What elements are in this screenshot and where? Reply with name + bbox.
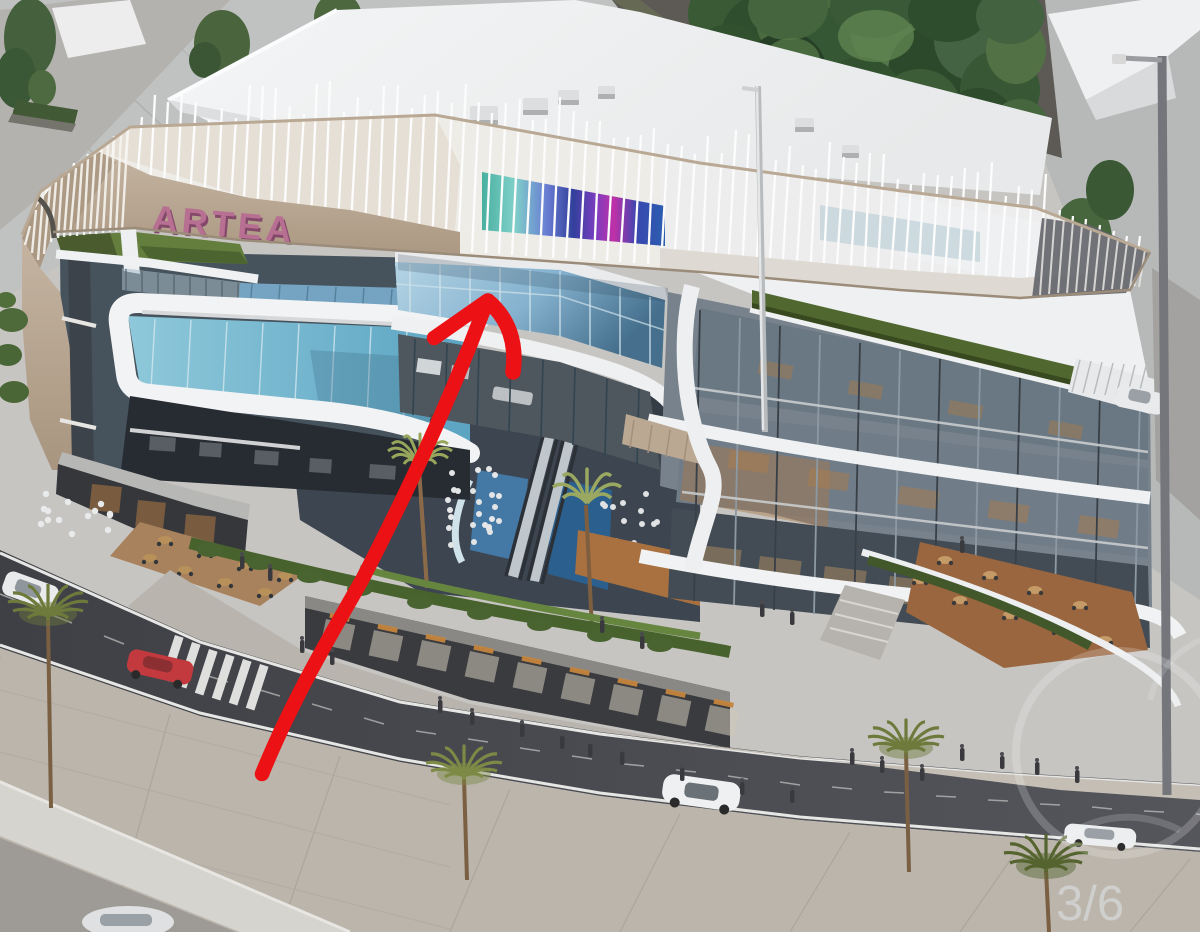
svg-text:3/6: 3/6 [1056, 877, 1124, 931]
